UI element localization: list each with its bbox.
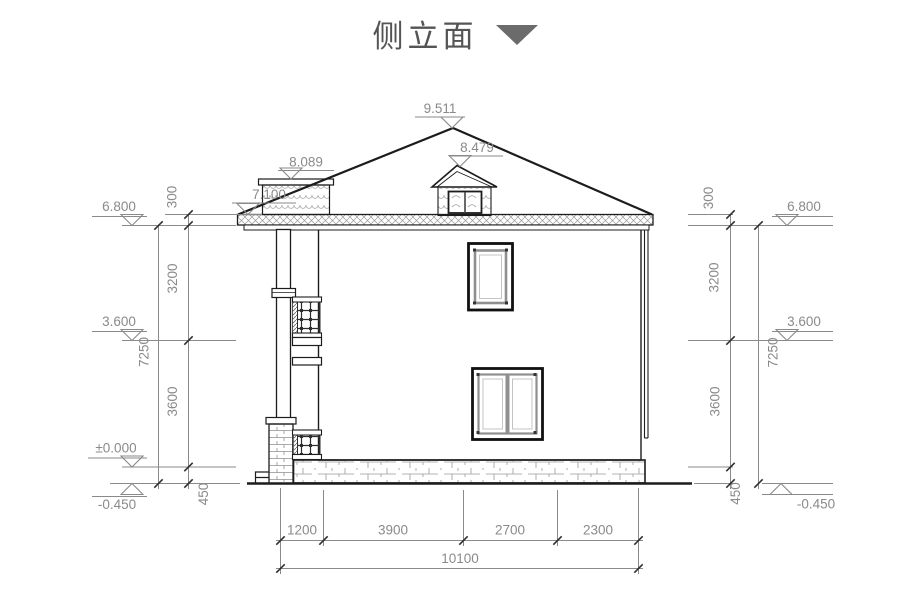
- dim-3200-left: 3200: [165, 263, 180, 293]
- level-ground-floor: ±0.000: [95, 441, 136, 456]
- dim-3200-right: 3200: [707, 262, 722, 292]
- dim-3900: 3900: [378, 523, 408, 538]
- drawing-page: 侧立面: [0, 0, 910, 612]
- porch-railing: [293, 430, 322, 460]
- level-parapet-top: 8.089: [289, 155, 323, 170]
- dim-450-left: 450: [196, 483, 211, 506]
- brick-pillar: [269, 424, 293, 484]
- dim-7250-left: 7250: [137, 337, 152, 367]
- dim-7250-right: 7250: [766, 337, 781, 367]
- level-site-right: -0.450: [797, 497, 835, 512]
- left-level-markers: 6.800 3.600 ±0.000 -0.450: [88, 199, 240, 512]
- dim-10100: 10100: [441, 551, 479, 566]
- first-floor-window: [473, 369, 543, 440]
- level-dormer-top: 8.479: [460, 140, 494, 155]
- eave-band: [238, 215, 654, 231]
- dormer: [432, 166, 497, 216]
- dim-1200: 1200: [287, 523, 317, 538]
- bottom-dims: 1200 3900 2700 2300 10100: [276, 488, 643, 574]
- level-eave-top: 7.100: [252, 187, 286, 202]
- elevation-drawing: 6.800 3.600 ±0.000 -0.450 9.511: [0, 0, 910, 612]
- dim-300-left: 300: [165, 186, 180, 209]
- building: [238, 128, 693, 484]
- porch-column: [266, 230, 296, 484]
- right-level-markers: 6.800 3.600 -0.450: [688, 199, 835, 512]
- level-second-floor-left: 3.600: [102, 314, 136, 329]
- second-floor-window: [469, 244, 513, 311]
- level-site-left: -0.450: [98, 497, 136, 512]
- right-vertical-dims: 300 3200 3600 450 7250: [701, 187, 781, 505]
- dim-2300: 2300: [583, 523, 613, 538]
- balcony-beam: [293, 358, 322, 366]
- downspout: [645, 230, 649, 438]
- level-second-floor-right: 3.600: [787, 314, 821, 329]
- dim-450-right: 450: [728, 482, 743, 505]
- level-roof-peak: 9.511: [424, 101, 457, 116]
- left-vertical-dims: 300 3200 3600 450 7250: [137, 186, 212, 506]
- dim-300-right: 300: [701, 187, 716, 210]
- dim-3600-left: 3600: [165, 386, 180, 416]
- balcony-railing: [293, 297, 322, 365]
- dim-2700: 2700: [495, 523, 525, 538]
- level-eave-right: 6.800: [787, 199, 821, 214]
- level-eave-left: 6.800: [102, 199, 136, 214]
- plinth-band: [294, 460, 646, 483]
- entry-steps: [256, 472, 270, 484]
- balcony-slab: [293, 338, 322, 346]
- dim-3600-right: 3600: [708, 386, 723, 416]
